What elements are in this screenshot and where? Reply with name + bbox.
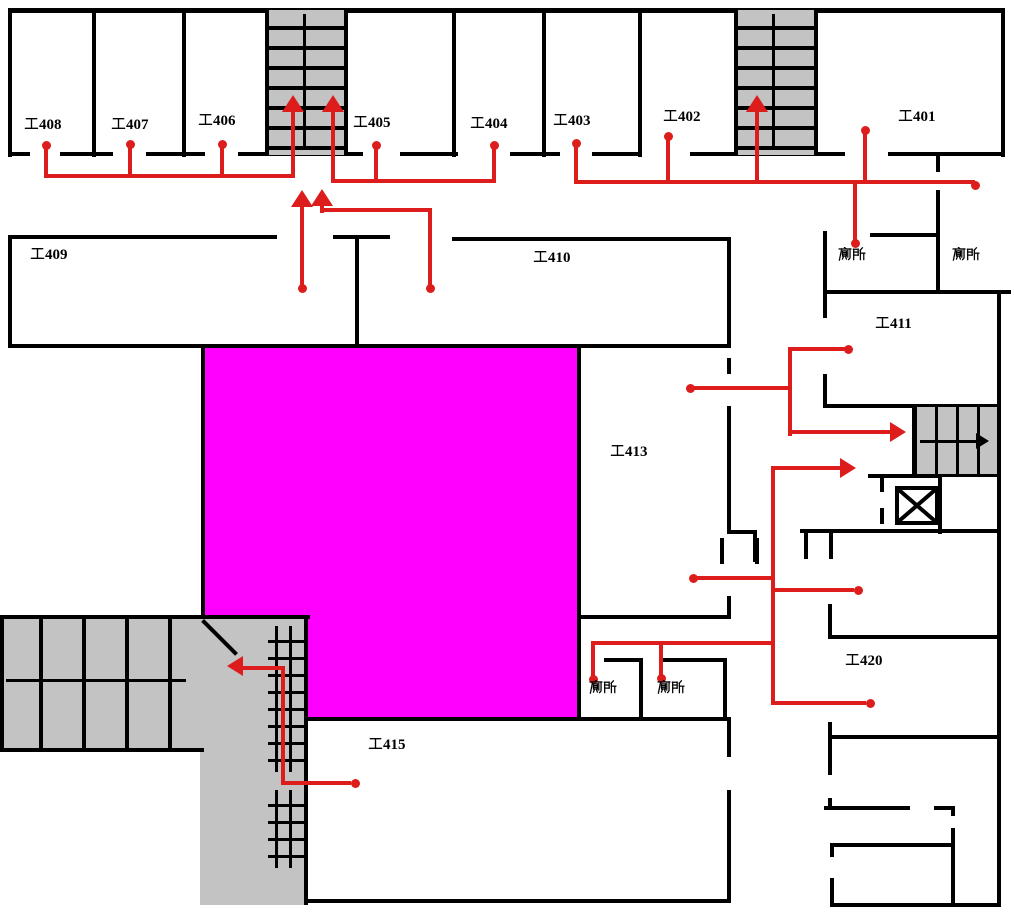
route-line: [44, 174, 295, 178]
wall: [182, 8, 186, 157]
route-origin-dot: [844, 345, 853, 354]
wall: [8, 235, 12, 348]
wall: [870, 233, 940, 237]
room-label-411: 411: [875, 315, 912, 333]
wall: [578, 344, 731, 348]
room-label-406: 406: [198, 112, 236, 130]
route-line: [788, 430, 890, 434]
wall: [804, 529, 808, 559]
room-label-408: 408: [24, 116, 62, 134]
wall: [355, 237, 359, 346]
stairs-icon: [268, 626, 308, 772]
route-arrow-up: [322, 95, 344, 112]
wall: [727, 717, 731, 757]
route-line: [659, 641, 663, 676]
wall: [723, 658, 727, 720]
wall: [823, 374, 827, 408]
wall: [823, 404, 915, 408]
route-arrow-right: [840, 458, 856, 478]
wall: [306, 717, 731, 721]
route-line: [281, 781, 351, 785]
wall: [936, 152, 940, 172]
wall: [92, 8, 96, 157]
route-line: [374, 147, 378, 183]
toilet-label-ne-right: [952, 247, 980, 264]
route-line: [688, 386, 792, 390]
wall: [639, 658, 643, 720]
route-line: [863, 134, 867, 182]
elevator-x-icon: [895, 486, 939, 525]
route-line: [788, 347, 792, 436]
route-origin-dot: [572, 139, 581, 148]
wall: [92, 152, 113, 156]
wall: [510, 152, 542, 156]
stairs-rail: [289, 626, 292, 772]
route-line: [320, 208, 432, 212]
wall: [828, 735, 1001, 739]
stairs-center-line: [303, 14, 306, 150]
wall: [997, 290, 1001, 907]
wall: [8, 344, 205, 348]
route-origin-dot: [126, 140, 135, 149]
route-line: [281, 666, 285, 783]
stairs-icon: [734, 10, 818, 155]
wall: [828, 635, 1001, 639]
wall: [727, 596, 731, 617]
wall: [578, 615, 731, 619]
wall: [577, 344, 581, 721]
wall: [951, 828, 955, 907]
room-label-415: 415: [368, 736, 406, 754]
room-label-409: 409: [30, 246, 68, 264]
route-line: [574, 147, 578, 182]
route-origin-dot: [689, 574, 698, 583]
toilet-label-sw-right: [657, 680, 685, 697]
room-label-407: 407: [111, 116, 149, 134]
route-origin-dot: [372, 141, 381, 150]
route-line: [492, 147, 496, 183]
route-origin-dot: [218, 140, 227, 149]
wall: [830, 843, 834, 857]
wall: [868, 474, 941, 478]
wall: [333, 235, 390, 239]
wall: [880, 476, 884, 492]
wall: [0, 615, 4, 748]
toilet-label-ne-left: [838, 247, 866, 264]
route-line: [574, 180, 975, 184]
wall: [400, 152, 452, 156]
wall: [951, 806, 955, 816]
route-line: [771, 466, 840, 470]
wall: [638, 8, 642, 157]
wall: [663, 658, 727, 662]
stairs-rail: [275, 626, 278, 772]
route-line: [691, 576, 771, 580]
route-origin-dot: [971, 181, 980, 190]
route-line: [853, 182, 857, 241]
room-label-401: 401: [898, 108, 936, 126]
wall: [727, 358, 731, 374]
wall: [452, 152, 458, 156]
wall: [823, 231, 827, 294]
wall: [720, 538, 724, 564]
route-line: [428, 210, 432, 288]
wall: [604, 658, 641, 662]
route-line: [591, 641, 595, 677]
wall: [201, 344, 581, 348]
wall: [888, 152, 1001, 156]
wall: [60, 152, 92, 156]
route-origin-dot: [861, 126, 870, 135]
wall: [690, 152, 734, 156]
route-arrow-up: [746, 95, 768, 112]
route-line: [591, 641, 771, 645]
route-line: [320, 205, 324, 213]
wall: [8, 152, 30, 156]
route-origin-dot: [866, 699, 875, 708]
route-origin-dot: [854, 586, 863, 595]
wall: [830, 843, 953, 847]
route-line: [243, 666, 283, 670]
route-arrow-up: [291, 190, 313, 207]
room-label-420: 420: [845, 652, 883, 670]
room-label-405: 405: [353, 114, 391, 132]
wall: [8, 8, 1005, 13]
room-label-403: 403: [553, 112, 591, 130]
wall: [829, 529, 833, 559]
route-line: [775, 701, 866, 705]
toilet-label-sw-left: [589, 680, 617, 697]
wall: [828, 722, 832, 775]
wall: [8, 235, 277, 239]
wall: [727, 790, 731, 903]
stairs-icon: [0, 615, 204, 752]
wall: [1001, 8, 1005, 157]
route-arrow-left: [227, 656, 243, 676]
route-line: [775, 588, 854, 592]
route-line: [755, 110, 759, 182]
route-origin-dot: [686, 384, 695, 393]
wall: [200, 615, 310, 619]
route-line: [666, 140, 670, 182]
route-line: [331, 179, 496, 183]
route-origin-dot: [664, 132, 673, 141]
route-line: [771, 466, 775, 705]
stairs-rail: [289, 790, 292, 868]
room-label-404: 404: [470, 115, 508, 133]
route-origin-dot: [426, 284, 435, 293]
wall: [182, 152, 205, 156]
route-line: [291, 110, 295, 178]
route-arrow-up: [282, 95, 304, 112]
wall: [727, 406, 731, 534]
wall: [452, 237, 731, 241]
room-label-410: 410: [533, 249, 571, 267]
route-origin-dot: [42, 141, 51, 150]
wall: [823, 294, 827, 318]
wall: [880, 508, 884, 524]
stairs-center-line: [920, 440, 978, 443]
route-line: [788, 347, 850, 351]
route-arrow-right: [890, 422, 906, 442]
route-line: [300, 206, 304, 288]
wall: [823, 290, 1011, 294]
stairs-icon: [268, 790, 308, 868]
wall: [830, 903, 999, 907]
wall: [824, 806, 910, 810]
wall: [542, 8, 546, 157]
route-origin-dot: [490, 141, 499, 150]
wall: [592, 152, 638, 156]
wall: [201, 344, 205, 621]
wall: [452, 8, 456, 157]
wall: [936, 190, 940, 294]
wall: [542, 152, 560, 156]
stairs-rail: [275, 790, 278, 868]
wall: [146, 152, 182, 156]
wall: [727, 237, 731, 346]
wall: [755, 538, 759, 564]
room-label-402: 402: [663, 108, 701, 126]
stairs-center-line: [772, 14, 775, 150]
wall: [828, 604, 832, 637]
route-origin-dot: [298, 284, 307, 293]
stairs-center-line: [6, 679, 186, 682]
floor-plan: 408 407 406 405 404 403 402 401 409 410 …: [0, 0, 1014, 917]
route-line: [331, 110, 335, 183]
route-arrow-up: [311, 189, 333, 206]
wall: [8, 8, 12, 157]
stairs-icon: [265, 10, 348, 155]
stairs-direction-arrow: [976, 433, 989, 449]
route-origin-dot: [351, 779, 360, 788]
room-label-413: 413: [610, 443, 648, 461]
